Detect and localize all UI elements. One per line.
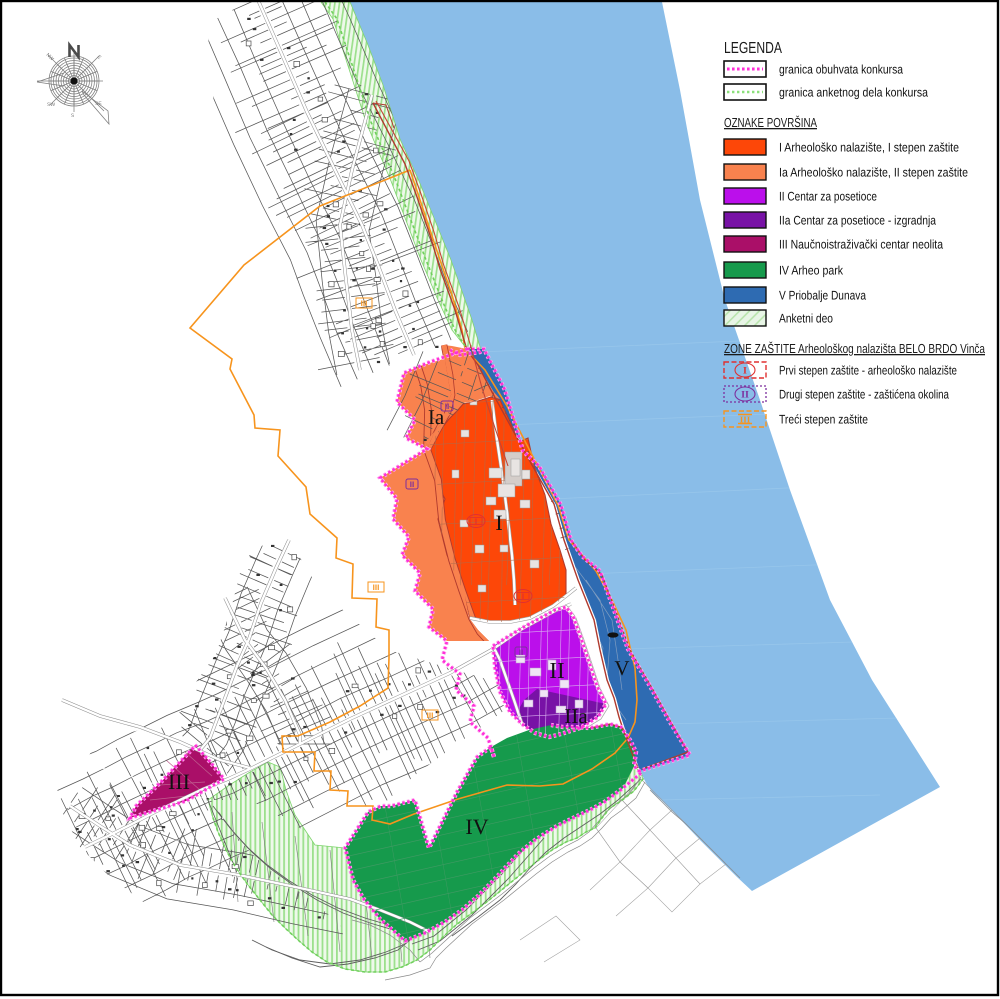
svg-text:I Arheološko nalazište, I step: I Arheološko nalazište, I stepen zaštite [779, 141, 959, 155]
svg-text:IV: IV [465, 814, 488, 839]
svg-text:ZONE ZAŠTITE Arheološkog nalaz: ZONE ZAŠTITE Arheološkog nalazišta BELO … [724, 341, 986, 356]
svg-text:Treći stepen zaštite: Treći stepen zaštite [779, 413, 868, 427]
svg-text:OZNAKE POVRŠINA: OZNAKE POVRŠINA [724, 115, 817, 130]
svg-text:granica obuhvata konkursa: granica obuhvata konkursa [779, 63, 903, 77]
svg-text:V Priobalje Dunava: V Priobalje Dunava [779, 289, 866, 303]
svg-text:II: II [741, 390, 749, 401]
svg-text:III: III [373, 583, 380, 592]
svg-text:IV Arheo park: IV Arheo park [779, 264, 844, 278]
svg-text:SE: SE [95, 101, 102, 107]
svg-text:IIa: IIa [564, 704, 588, 728]
svg-text:II: II [445, 402, 449, 411]
svg-text:III: III [740, 415, 751, 425]
svg-text:Drugi stepen zaštite - zaštiće: Drugi stepen zaštite - zaštićena okolina [779, 388, 949, 402]
svg-text:Ia Arheološko nalazište, II st: Ia Arheološko nalazište, II stepen zašti… [779, 166, 968, 180]
svg-text:IIa Centar za posetioce - izgr: IIa Centar za posetioce - izgradnja [779, 214, 936, 228]
svg-text:III Naučnoistraživački centar: III Naučnoistraživački centar neolita [779, 238, 943, 252]
svg-text:SW: SW [47, 102, 55, 108]
svg-text:granica anketnog dela konkursa: granica anketnog dela konkursa [779, 86, 928, 100]
svg-text:III: III [168, 769, 190, 794]
svg-text:LEGENDA: LEGENDA [724, 40, 782, 57]
svg-text:I: I [495, 510, 502, 535]
svg-text:III: III [361, 299, 368, 308]
svg-text:Ia: Ia [428, 405, 445, 429]
svg-text:I: I [475, 517, 477, 526]
svg-text:I: I [743, 366, 747, 377]
svg-text:I: I [522, 592, 524, 601]
svg-text:III: III [427, 711, 434, 720]
svg-text:Prvi stepen zaštite - arheološ: Prvi stepen zaštite - arheološko nalaziš… [779, 364, 957, 378]
svg-text:V: V [614, 656, 629, 680]
svg-text:II Centar za posetioce: II Centar za posetioce [779, 190, 877, 204]
svg-text:II: II [519, 648, 523, 657]
svg-text:Anketni deo: Anketni deo [779, 312, 833, 326]
svg-text:II: II [549, 658, 564, 683]
svg-text:II: II [410, 480, 414, 489]
